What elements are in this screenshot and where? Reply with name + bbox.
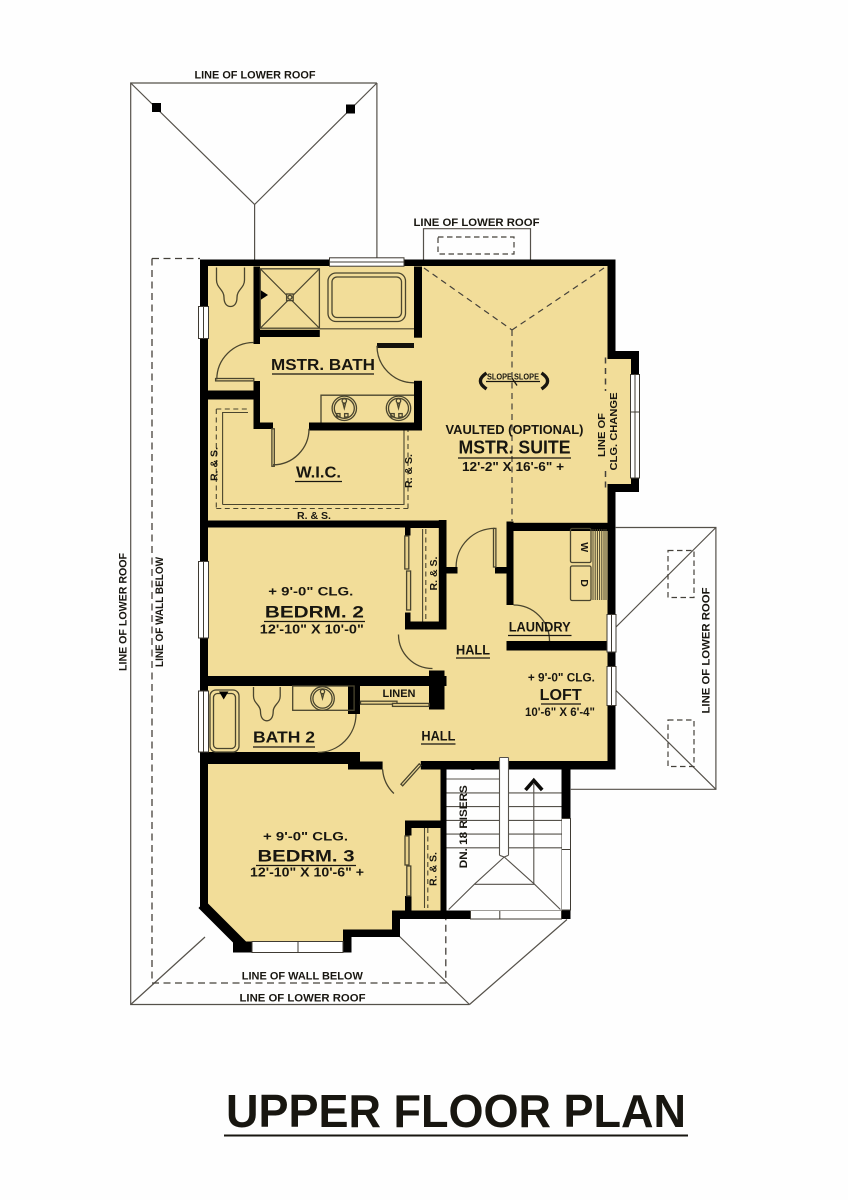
svg-text:MSTR. SUITE: MSTR. SUITE [459,438,571,458]
svg-text:BEDRM. 3: BEDRM. 3 [258,847,355,866]
svg-text:R. & S.: R. & S. [429,852,440,886]
svg-text:D: D [578,579,590,587]
svg-text:LINE OF LOWER ROOF: LINE OF LOWER ROOF [118,553,130,671]
svg-text:HALL: HALL [421,729,455,744]
svg-text:12'-10" X 10'-6" +: 12'-10" X 10'-6" + [250,866,364,880]
svg-text:+ 9'-0" CLG.: + 9'-0" CLG. [268,585,353,599]
svg-text:R. & S.: R. & S. [210,447,221,481]
svg-text:+ 9'-0" CLG.: + 9'-0" CLG. [528,671,595,685]
svg-text:12'-10" X 10'-0": 12'-10" X 10'-0" [260,623,364,637]
svg-text:LAUNDRY: LAUNDRY [509,620,571,635]
svg-text:SLOPE SLOPE: SLOPE SLOPE [487,373,540,382]
svg-text:W: W [578,542,590,552]
svg-text:12'-2" X 16'-6" +: 12'-2" X 16'-6" + [462,460,564,474]
svg-text:R. & S.: R. & S. [404,454,415,488]
svg-text:MSTR. BATH: MSTR. BATH [271,357,375,374]
svg-text:LINE OF: LINE OF [597,413,608,457]
svg-text:LINEN: LINEN [383,688,416,700]
svg-text:LINE OF LOWER ROOF: LINE OF LOWER ROOF [240,993,366,1005]
svg-text:LINE OF LOWER ROOF: LINE OF LOWER ROOF [701,587,713,713]
svg-text:W.I.C.: W.I.C. [296,465,341,482]
svg-text:R. & S.: R. & S. [429,556,440,590]
svg-text:LINE OF LOWER ROOF: LINE OF LOWER ROOF [195,70,316,82]
svg-text:CLG. CHANGE: CLG. CHANGE [609,392,620,470]
svg-text:LINE OF WALL BELOW: LINE OF WALL BELOW [154,556,166,667]
svg-text:LINE OF LOWER ROOF: LINE OF LOWER ROOF [414,217,540,229]
svg-text:VAULTED (OPTIONAL): VAULTED (OPTIONAL) [446,423,584,437]
svg-text:LOFT: LOFT [540,687,583,704]
svg-text:LINE OF WALL BELOW: LINE OF WALL BELOW [242,971,364,983]
svg-text:+ 9'-0" CLG.: + 9'-0" CLG. [263,830,348,844]
svg-text:BATH 2: BATH 2 [253,730,315,747]
svg-text:R. & S.: R. & S. [297,511,331,522]
svg-text:10'-6" X 6'-4": 10'-6" X 6'-4" [525,707,595,719]
svg-text:UPPER FLOOR PLAN: UPPER FLOOR PLAN [226,1085,686,1137]
svg-text:DN. 18 RISERS: DN. 18 RISERS [458,785,470,868]
svg-text:BEDRM. 2: BEDRM. 2 [265,603,364,622]
svg-text:HALL: HALL [456,643,490,658]
